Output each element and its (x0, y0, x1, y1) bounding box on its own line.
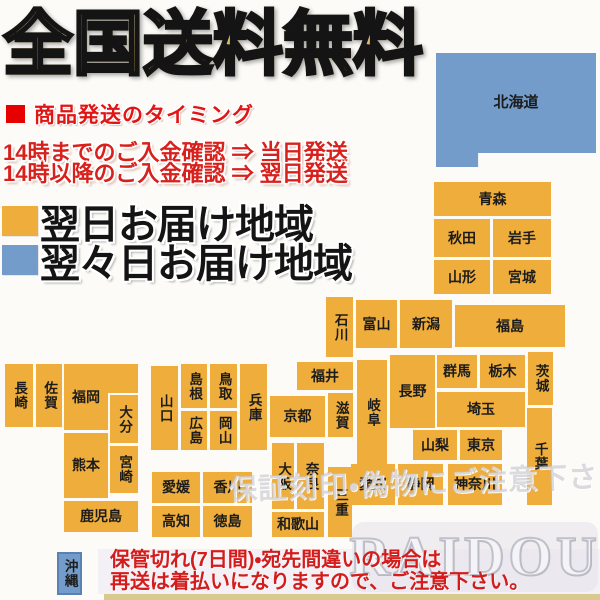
map-block-hiroshima: 広島 (181, 411, 207, 450)
map-block-gunma: 群馬 (437, 355, 477, 388)
map-block-kagawa: 香川 (203, 472, 252, 503)
map-block-shizuoka: 静岡 (398, 464, 443, 505)
map-block-saitama: 埼玉 (437, 392, 525, 427)
map-block-niigata: 新潟 (400, 300, 452, 348)
map-block-hokkaido: 北海道 (436, 53, 596, 167)
map-block-okinawa: 沖縄 (57, 552, 82, 595)
map-block-miyagi: 宮城 (493, 260, 551, 294)
map-block-okayama: 岡山 (210, 411, 237, 450)
map-block-osaka: 大阪 (272, 443, 294, 509)
map-block-aichi: 愛知 (351, 464, 395, 505)
map-block-mie: 三重 (328, 467, 352, 537)
map-block-ibaraki: 茨城 (528, 352, 553, 405)
map-block-yamagata: 山形 (434, 260, 490, 294)
map-block-nagasaki: 長崎 (5, 364, 33, 427)
map-block-miyazaki: 宮崎 (110, 446, 138, 493)
map-block-fukuoka-ext (106, 364, 138, 393)
map-block-kochi: 高知 (152, 506, 200, 537)
storage-notice-line-2: 再送は着払いになりますので、ご注意下さい。 (110, 572, 529, 594)
map-block-shiga: 滋賀 (328, 393, 353, 437)
map-block-fukushima: 福島 (455, 305, 565, 347)
map-block-gifu: 岐阜 (357, 360, 387, 465)
map-block-ishikawa: 石川 (326, 297, 353, 357)
map-block-tokyo: 東京 (460, 430, 502, 460)
map-block-shimane: 島根 (181, 364, 207, 408)
map-block-nara: 奈良 (297, 443, 324, 509)
storage-notice-line-1: 保管切れ(7日間)・宛先間違いの場合は (110, 550, 529, 572)
shipping-info-graphic: 全国送料無料 商品発送のタイミング 14時までのご入金確認 ⇒ 当日発送 14時… (0, 0, 600, 600)
map-block-kanagawa: 神奈川 (448, 464, 502, 505)
map-block-nagano: 長野 (390, 355, 435, 428)
map-block-tochigi: 栃木 (480, 355, 525, 388)
map-block-ehime: 愛媛 (152, 472, 200, 503)
map-block-toyama: 富山 (356, 300, 397, 348)
map-block-hyogo: 兵庫 (240, 364, 267, 450)
map-block-tokushima: 徳島 (203, 506, 252, 537)
map-block-chiba: 千葉 (527, 408, 552, 505)
map-block-yamanashi: 山梨 (413, 430, 457, 460)
map-block-kyoto: 京都 (270, 396, 325, 437)
map-block-tottori: 鳥取 (210, 364, 237, 408)
map-block-saga: 佐賀 (36, 364, 62, 427)
storage-notice-text: 保管切れ(7日間)・宛先間違いの場合は 再送は着払いになりますので、ご注意下さい… (110, 550, 529, 593)
map-block-akita: 秋田 (434, 219, 490, 257)
map-block-iwate: 岩手 (493, 219, 551, 257)
map-block-oita: 大分 (110, 395, 138, 443)
japan-map: 北海道青森秋田岩手山形宮城福島新潟富山石川福井岐阜長野群馬栃木茨城埼玉山梨東京千… (0, 0, 600, 600)
map-block-fukui: 福井 (297, 362, 353, 390)
map-block-yamaguchi: 山口 (151, 366, 178, 450)
map-block-wakayama: 和歌山 (272, 512, 324, 537)
map-block-kagoshima: 鹿児島 (64, 501, 138, 532)
map-block-aomori: 青森 (434, 182, 551, 216)
map-block-fukuoka: 福岡 (64, 364, 108, 430)
map-block-kumamoto: 熊本 (64, 433, 108, 498)
bottom-accent-strip (104, 594, 600, 600)
